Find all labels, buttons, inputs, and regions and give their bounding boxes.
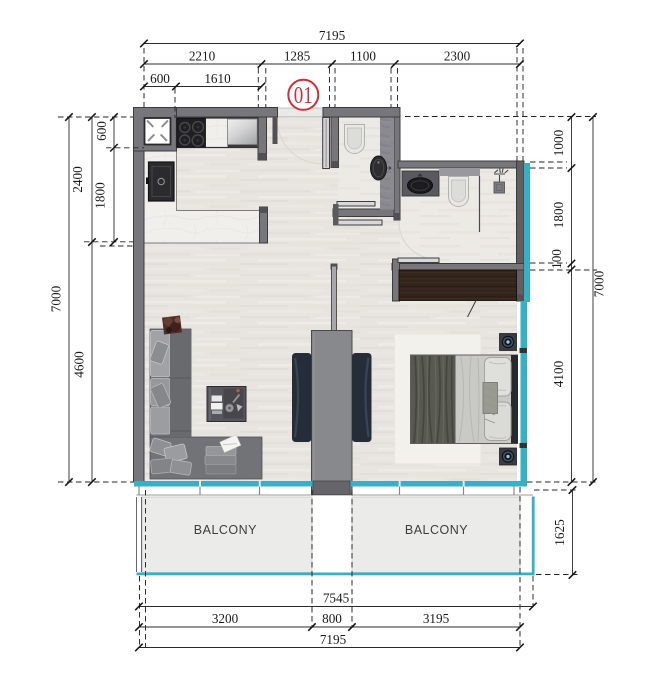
svg-text:7195: 7195 [319,28,346,43]
svg-text:1625: 1625 [552,519,567,546]
svg-text:7195: 7195 [320,632,347,647]
svg-text:7000: 7000 [49,285,64,312]
svg-text:2400: 2400 [70,166,85,193]
svg-text:100: 100 [549,249,564,269]
svg-text:800: 800 [322,611,342,626]
svg-text:1000: 1000 [551,129,566,156]
svg-text:01: 01 [294,83,313,109]
svg-text:3195: 3195 [423,611,450,626]
svg-text:4600: 4600 [72,351,87,378]
svg-text:2210: 2210 [189,49,216,64]
svg-text:BALCONY: BALCONY [194,523,257,537]
svg-text:1100: 1100 [350,49,376,64]
svg-text:600: 600 [150,71,170,86]
svg-text:7545: 7545 [323,591,350,606]
svg-text:4100: 4100 [551,360,566,387]
svg-text:1285: 1285 [284,49,311,64]
svg-text:7000: 7000 [592,270,607,297]
svg-text:1610: 1610 [204,71,231,86]
svg-text:600: 600 [94,121,109,141]
svg-text:1800: 1800 [93,182,108,209]
svg-text:1800: 1800 [551,201,566,228]
svg-text:3200: 3200 [212,611,239,626]
svg-text:2300: 2300 [444,49,471,64]
svg-text:BALCONY: BALCONY [405,523,468,537]
